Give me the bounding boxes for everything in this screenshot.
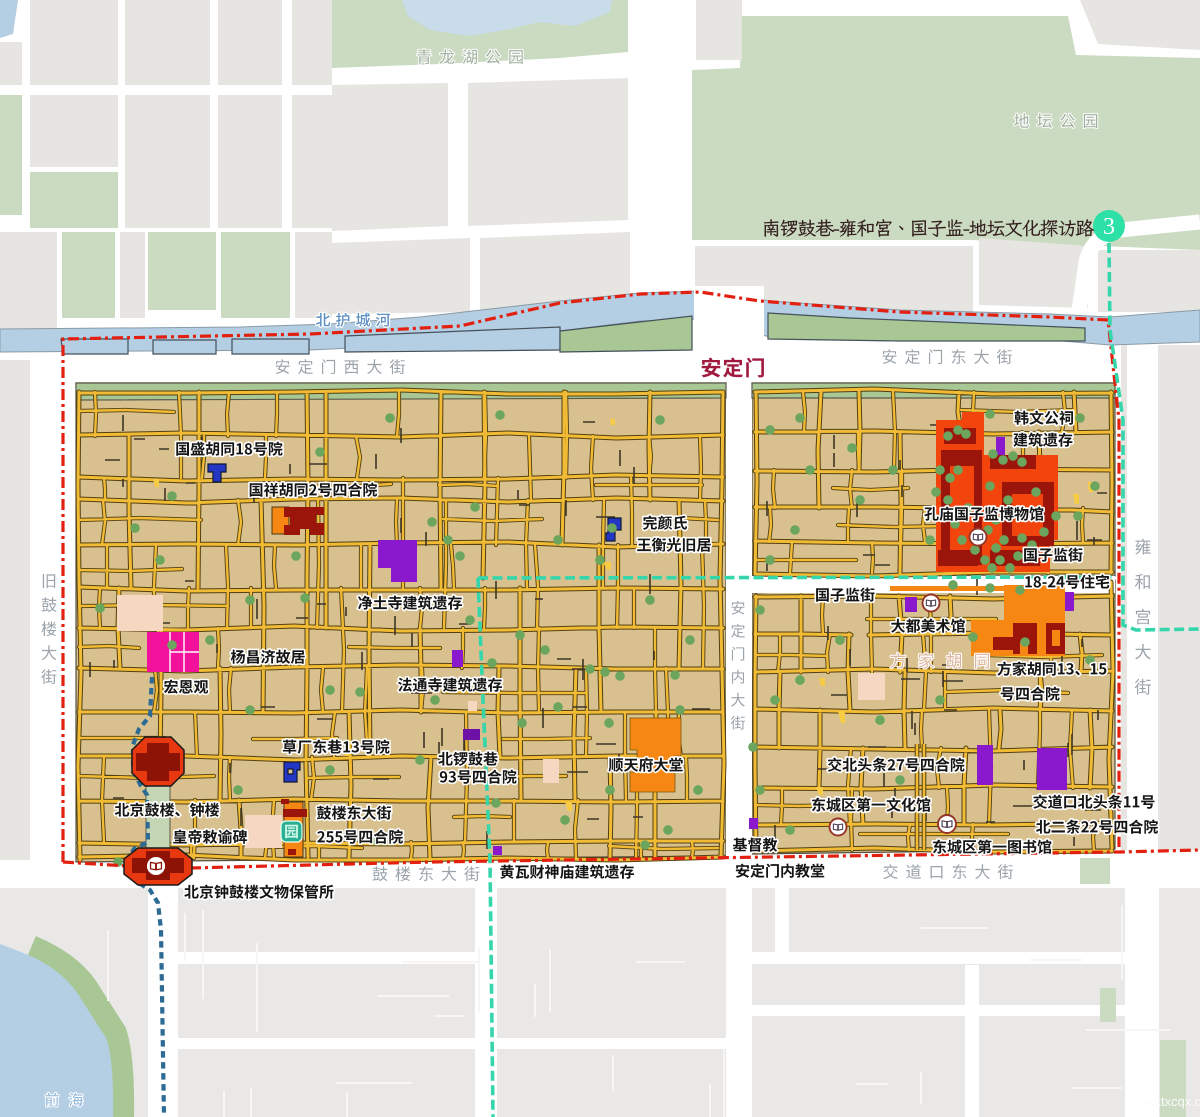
svg-text:3: 3 bbox=[1103, 214, 1115, 240]
svg-text:m.ktxcqx.com: m.ktxcqx.com bbox=[1140, 1094, 1200, 1109]
